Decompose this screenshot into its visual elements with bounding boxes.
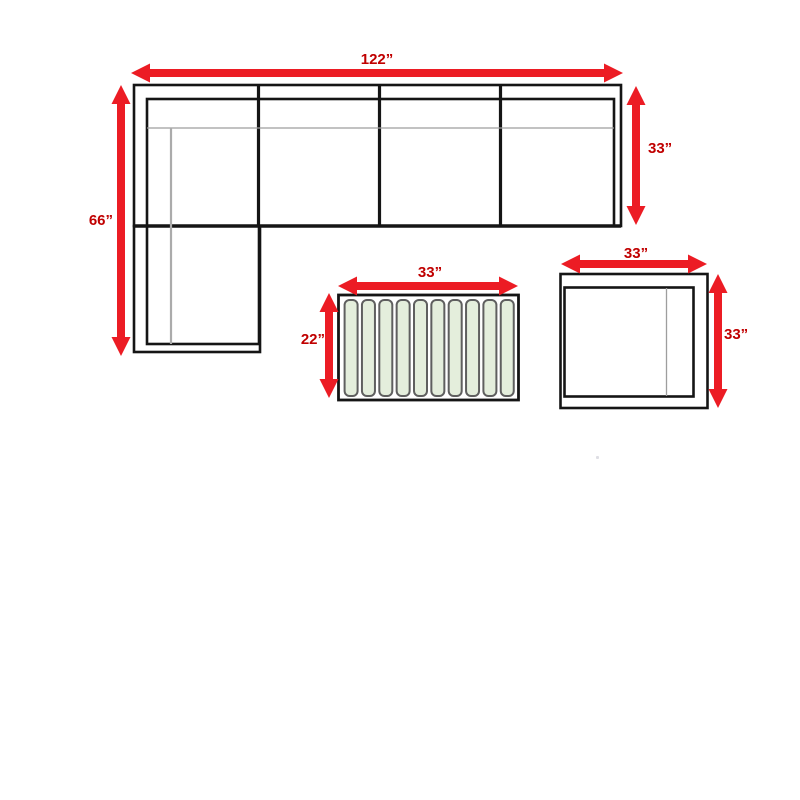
dimension-diagram: 122” 66” 33” 33” 22” 33” 33” [0, 0, 800, 800]
end-table-width-label: 33” [601, 245, 671, 263]
table-slat [414, 300, 427, 396]
coffee-table-drawing [339, 295, 519, 400]
coffee-table-width-label: 33” [395, 264, 465, 282]
sofa-length-arrow [112, 85, 131, 356]
end-table-outer-outline [561, 274, 708, 408]
sofa-depth-label: 33” [648, 140, 698, 158]
end-table-drawing [561, 274, 708, 408]
sofa-depth-arrow [627, 86, 646, 225]
stray-speck [596, 456, 599, 459]
chaise-inner-outline [147, 226, 259, 344]
table-slat [466, 300, 479, 396]
table-slat [397, 300, 410, 396]
chaise-outer-outline [134, 226, 260, 352]
end-table-depth-label: 33” [724, 326, 774, 344]
sofa-outer-outline [134, 85, 621, 226]
table-slat [362, 300, 375, 396]
slat-group [345, 300, 514, 396]
sectional-sofa-drawing [134, 85, 621, 352]
end-table-inner-outline [565, 288, 694, 397]
table-slat [501, 300, 514, 396]
coffee-table-depth-label: 22” [273, 331, 325, 349]
table-slat [449, 300, 462, 396]
sofa-length-label: 66” [61, 212, 113, 230]
table-slat [431, 300, 444, 396]
diagram-canvas [0, 0, 800, 800]
table-slat [379, 300, 392, 396]
table-slat [483, 300, 496, 396]
table-slat [345, 300, 358, 396]
sofa-width-label: 122” [337, 51, 417, 69]
